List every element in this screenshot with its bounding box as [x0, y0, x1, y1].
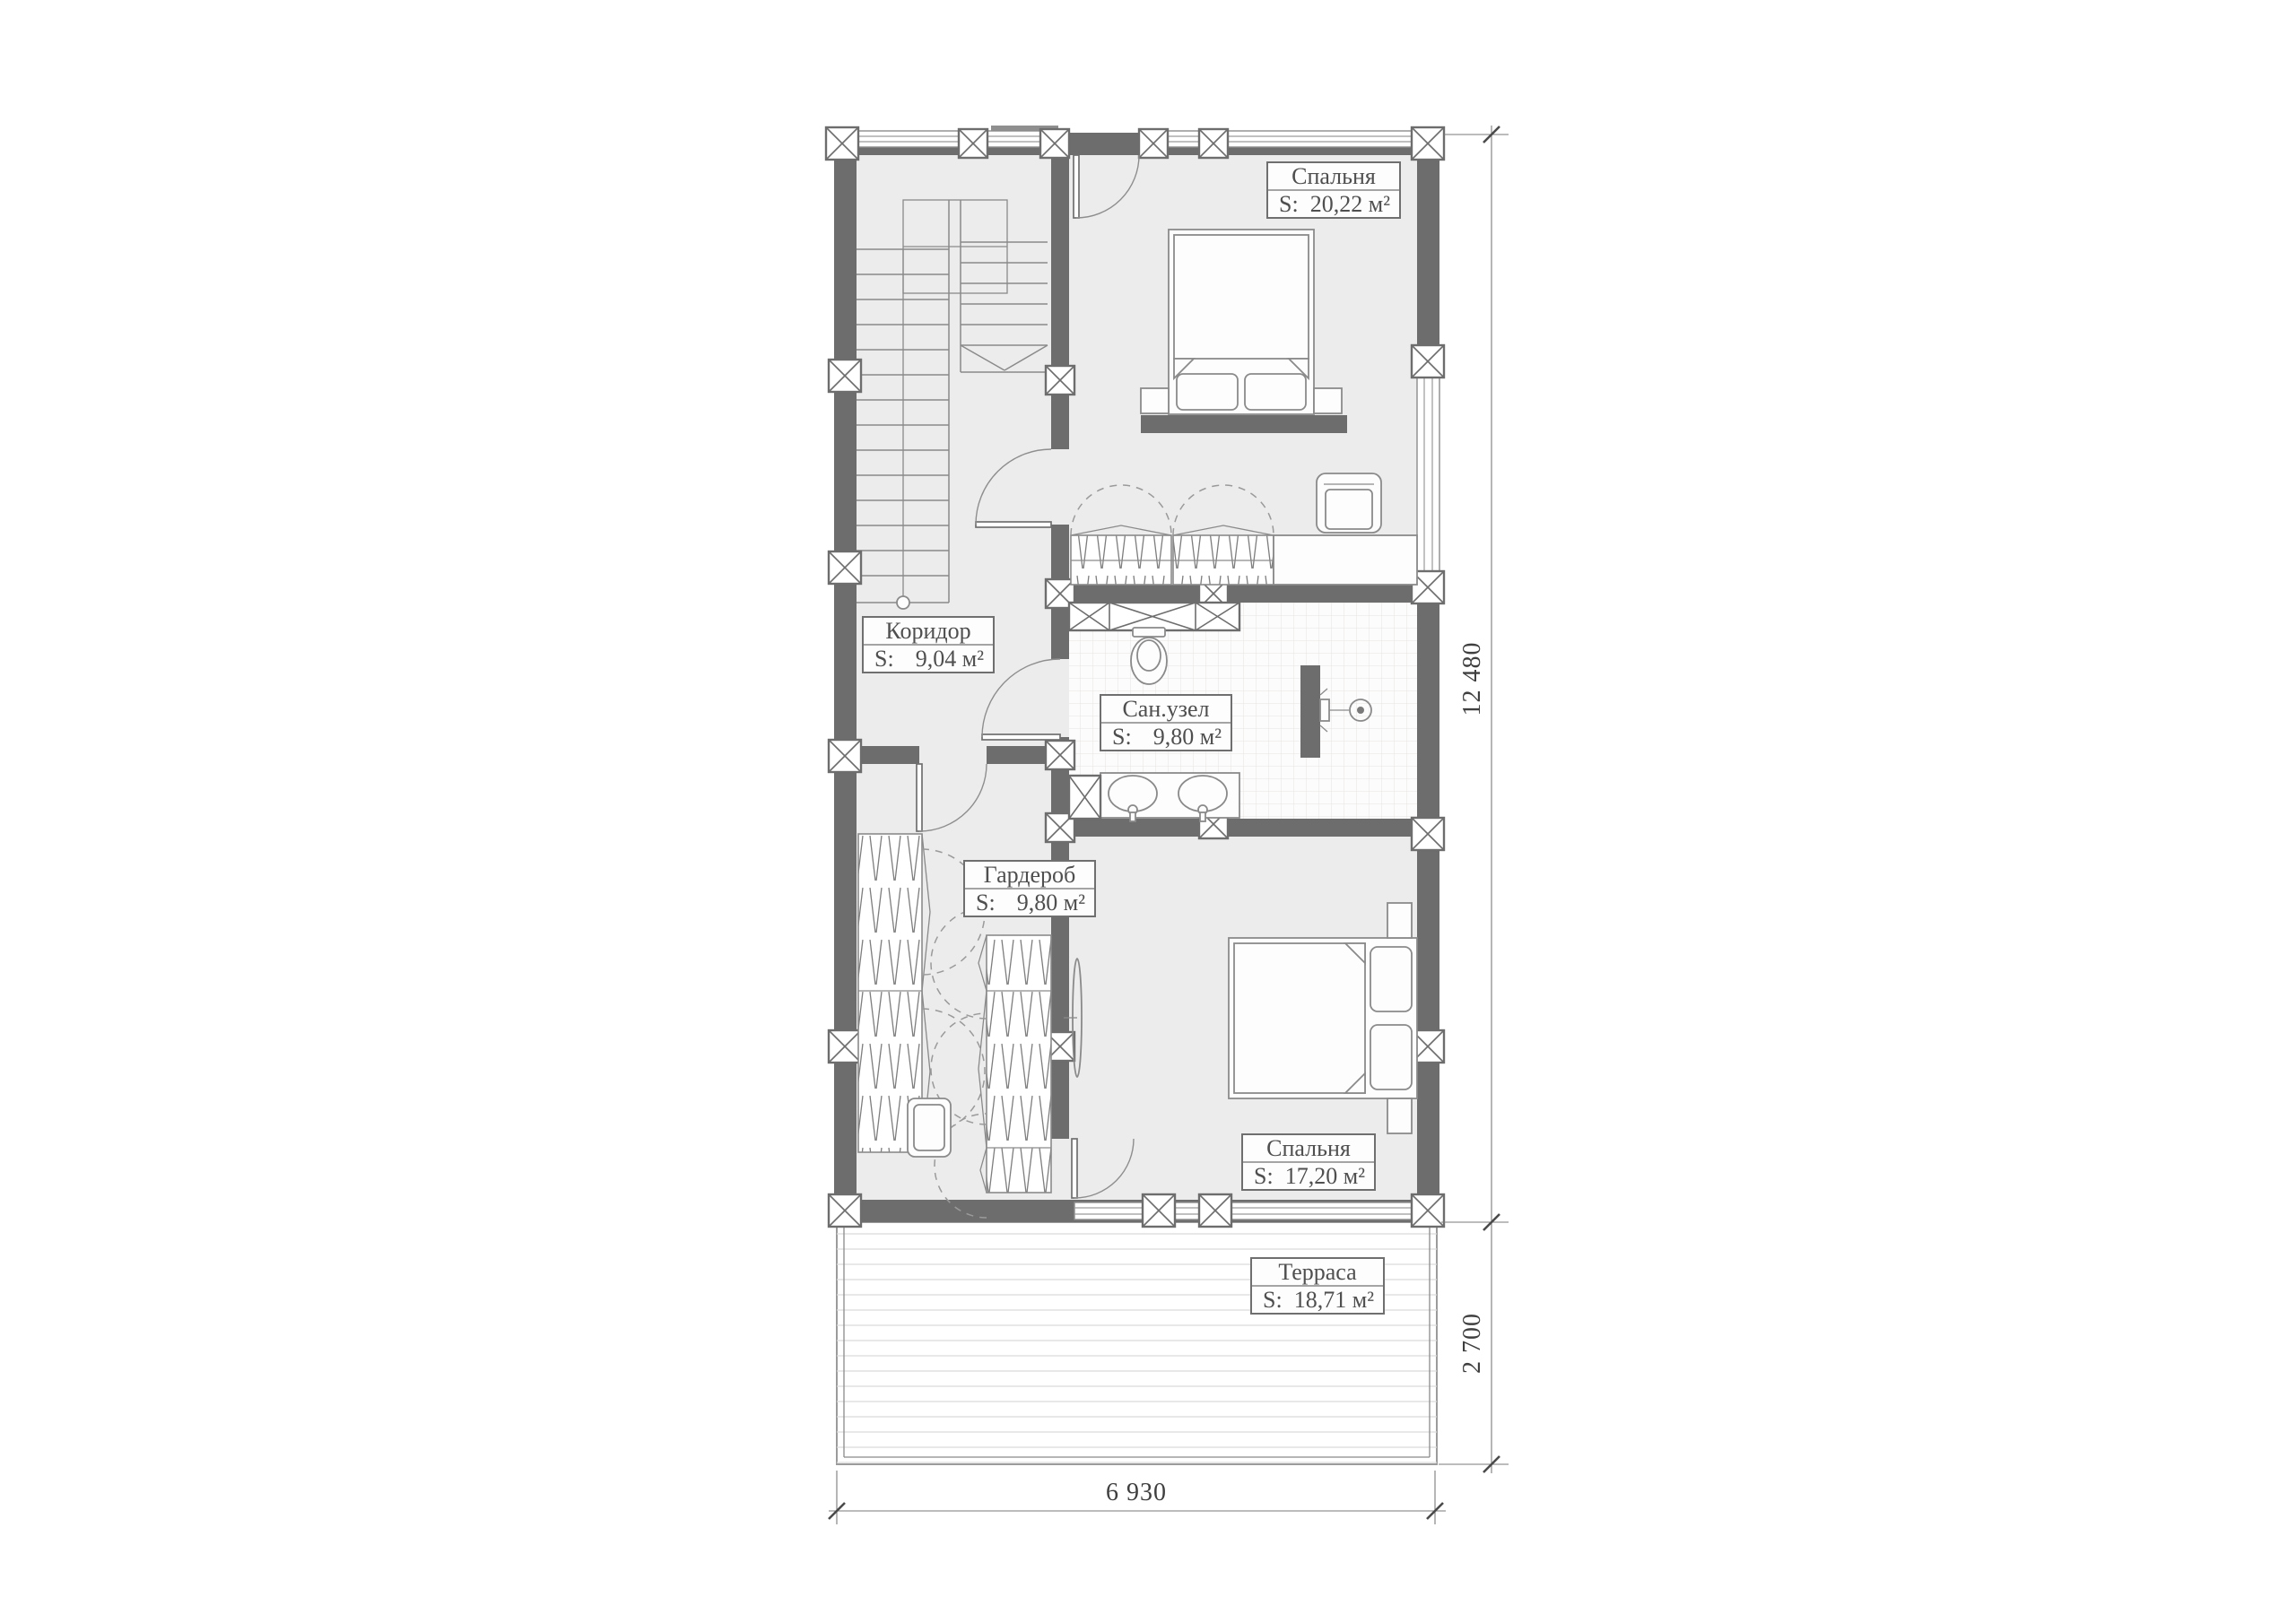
window-north-1 [857, 131, 973, 147]
room-name: Терраса [1278, 1259, 1357, 1285]
area-prefix: S: [1279, 191, 1299, 217]
dimension-right-main: 12 480 [1458, 642, 1486, 716]
room-name: Спальня [1291, 163, 1376, 189]
area-prefix: S: [874, 646, 894, 672]
bedroom2-furniture [1229, 903, 1417, 1133]
nightstand [1387, 903, 1412, 938]
window-south-bedroom2 [1074, 1202, 1417, 1219]
room-label-bedroom-2: Спальня S: 17,20 м² [1242, 1134, 1375, 1190]
toilet-icon [1131, 628, 1167, 684]
room-label-corridor: Коридор S: 9,04 м² [863, 617, 994, 673]
room-name: Гардероб [984, 862, 1076, 888]
area-value: 17,20 м² [1285, 1163, 1365, 1189]
headboard [1141, 415, 1347, 433]
nightstand [1141, 388, 1169, 413]
area-prefix: S: [1112, 724, 1132, 750]
floor-plan: Спальня S: 20,22 м² Коридор S: 9,04 м² С… [0, 0, 2296, 1623]
double-sink-vanity [1069, 773, 1239, 821]
wall-bathroom-west [1051, 603, 1069, 659]
area-prefix: S: [1254, 1163, 1274, 1189]
counter [1274, 535, 1417, 585]
bed-icon [1229, 903, 1417, 1133]
room-name: Спальня [1266, 1135, 1351, 1161]
area-prefix: S: [976, 890, 996, 916]
bench-icon [908, 1098, 951, 1157]
room-label-terrace: Терраса S: 18,71 м² [1251, 1258, 1384, 1314]
nightstand [1387, 1098, 1412, 1133]
duct-shaft [1069, 603, 1239, 630]
area-value: 9,80 м² [1153, 724, 1222, 750]
page: Спальня S: 20,22 м² Коридор S: 9,04 м² С… [0, 0, 2296, 1623]
room-label-wardrobe: Гардероб S: 9,80 м² [964, 861, 1095, 916]
area-value: 9,80 м² [1017, 890, 1085, 916]
dimension-bottom-width: 6 930 [1106, 1479, 1167, 1506]
nightstand [1314, 388, 1342, 413]
window-east-bedroom1 [1417, 372, 1439, 574]
area-prefix: S: [1263, 1287, 1283, 1313]
bathroom-pilaster [1069, 776, 1100, 819]
wall-bathroom-south [1069, 819, 1417, 837]
wall-bedroom1-south [1069, 585, 1417, 603]
area-value: 9,04 м² [916, 646, 984, 672]
stair-newel [897, 596, 909, 609]
wall-stair-east [1051, 155, 1069, 449]
room-name: Сан.узел [1122, 696, 1209, 722]
room-label-bathroom: Сан.узел S: 9,80 м² [1100, 695, 1231, 751]
dimension-right-terrace: 2 700 [1458, 1313, 1486, 1374]
armchair-icon [1317, 473, 1381, 533]
room-label-bedroom-1: Спальня S: 20,22 м² [1267, 162, 1400, 218]
wall-corridor-south [857, 746, 919, 764]
room-name: Коридор [885, 618, 970, 644]
area-value: 18,71 м² [1294, 1287, 1374, 1313]
area-value: 20,22 м² [1310, 191, 1390, 217]
